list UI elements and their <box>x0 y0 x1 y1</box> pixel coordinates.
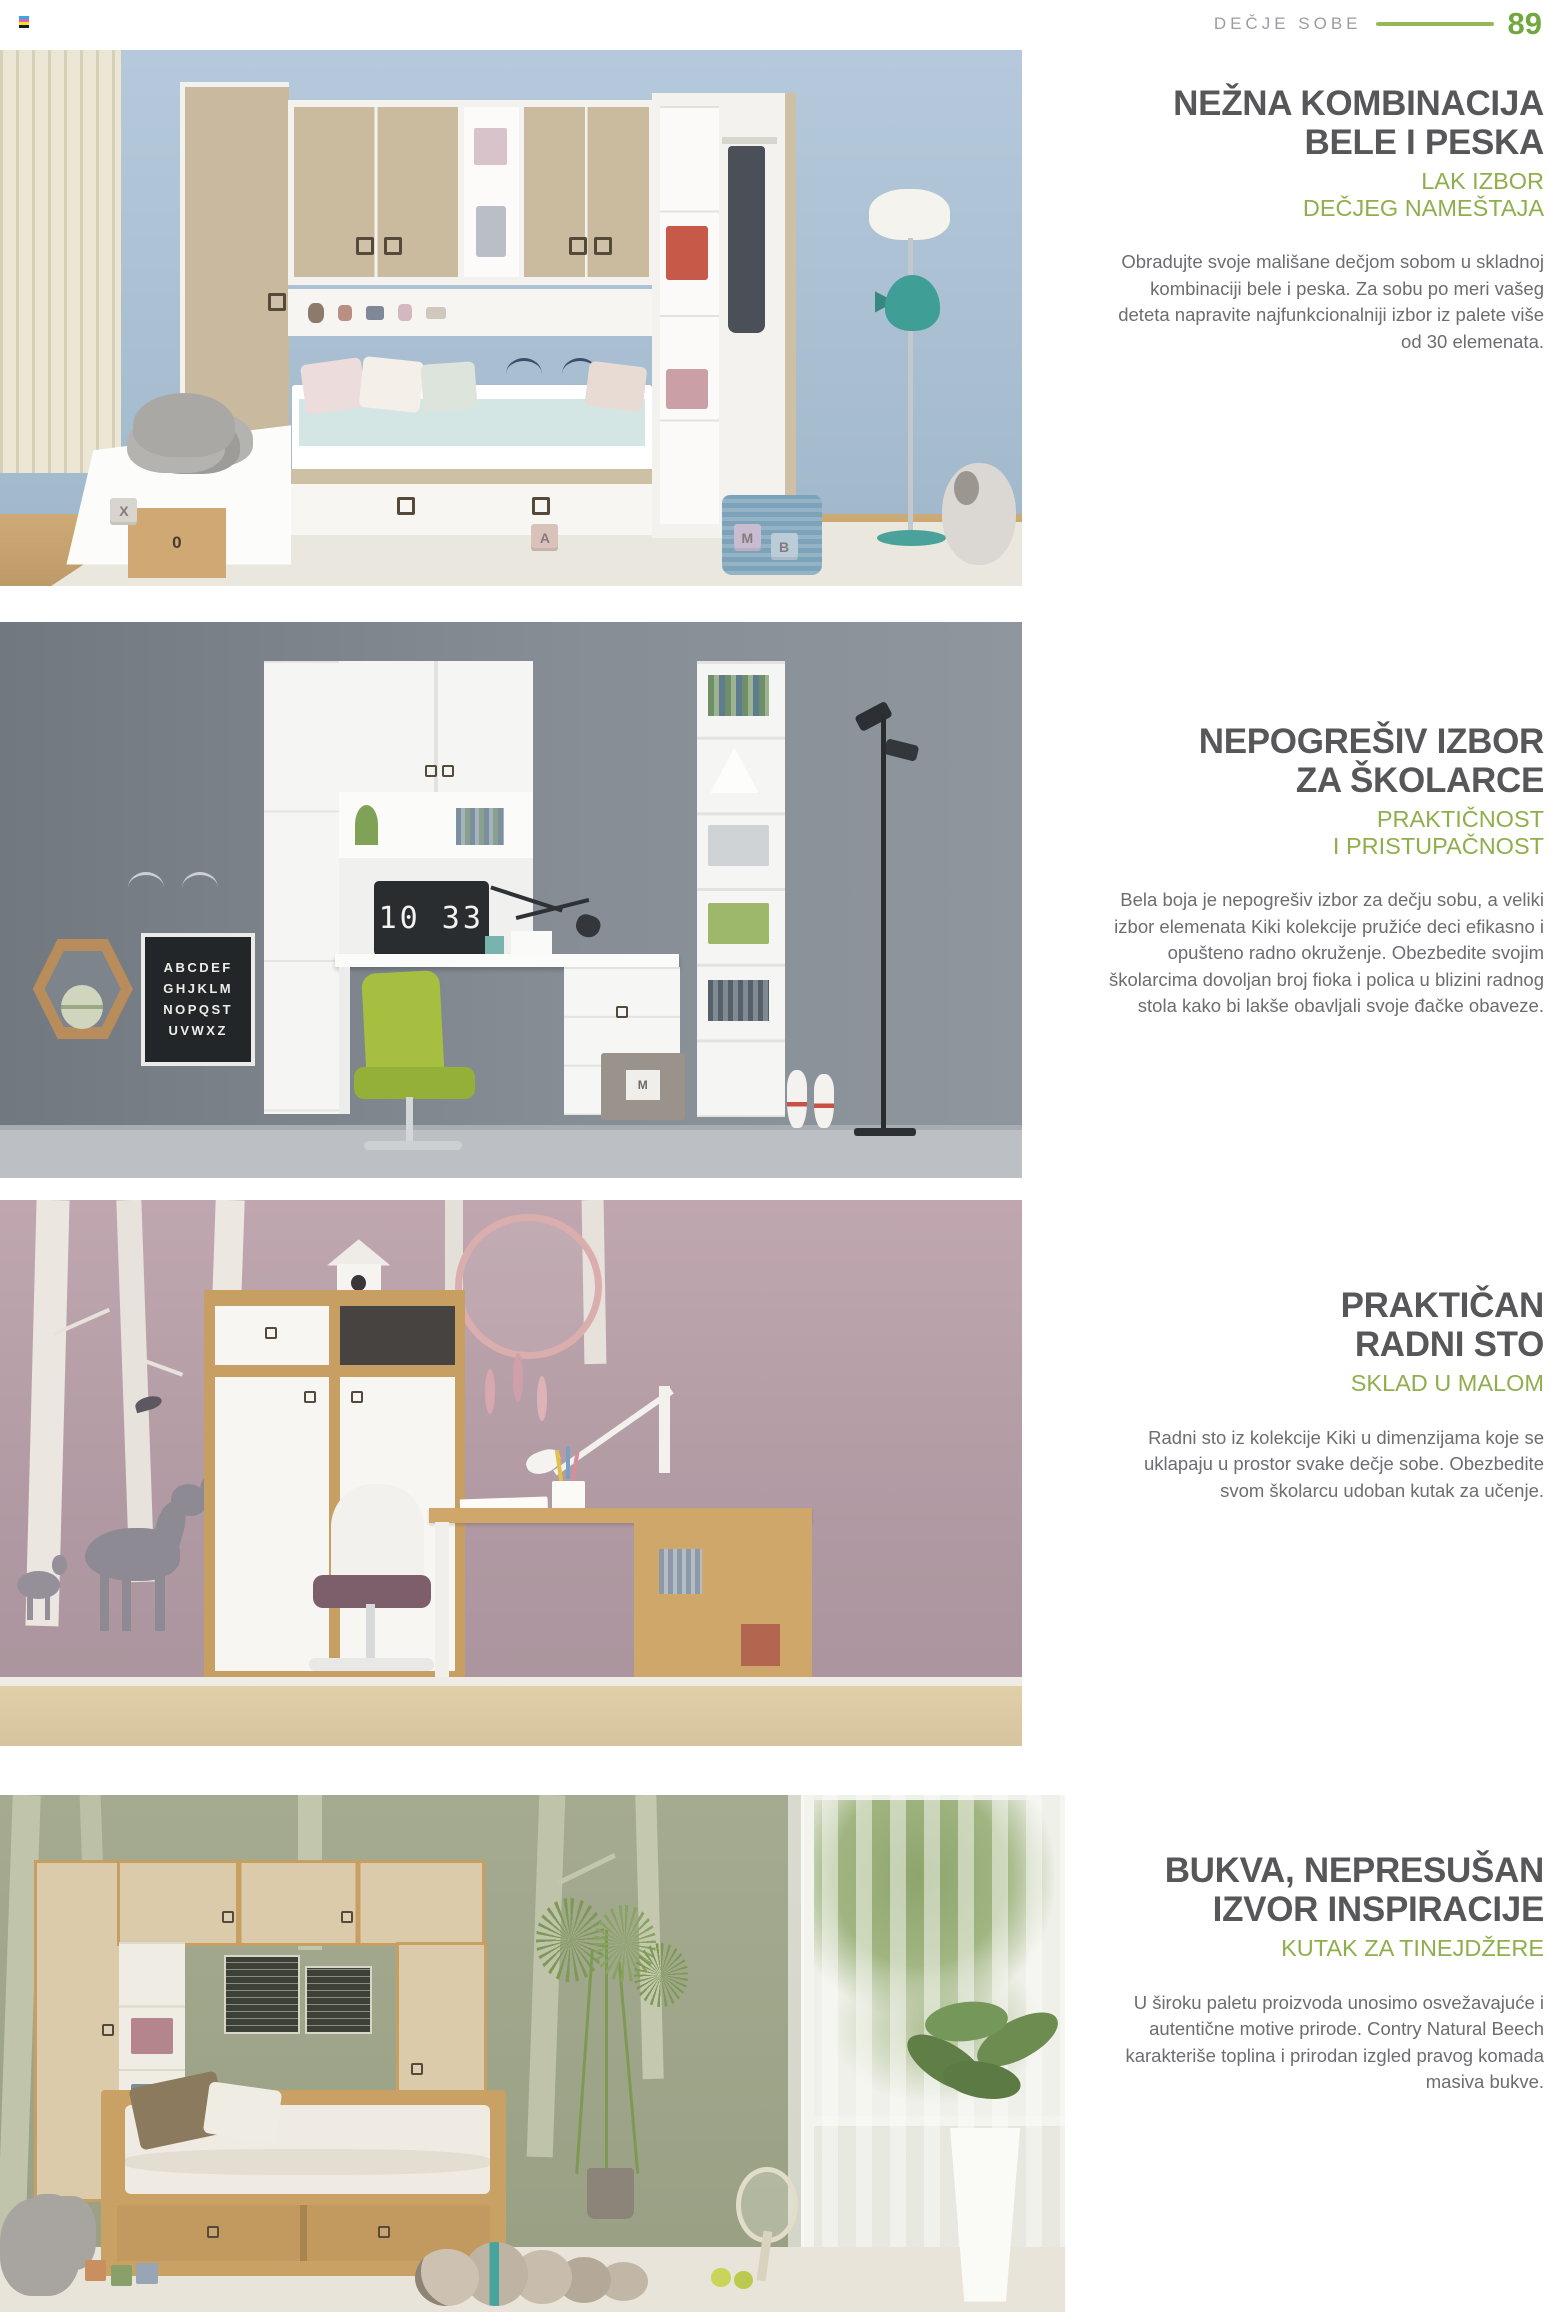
drawer-handle <box>207 2226 219 2238</box>
title-line: RADNI STO <box>1341 1325 1544 1364</box>
desk-shelf-unit <box>634 1523 813 1686</box>
section-title: NEPOGREŠIV IZBOR ZA ŠKOLARCE <box>1199 722 1544 800</box>
title-line: PRAKTIČAN <box>1341 1286 1544 1325</box>
trundle-trim <box>284 469 660 484</box>
open-shelf <box>340 1306 455 1365</box>
fawn-body <box>17 1571 60 1599</box>
lamp-base <box>877 530 946 546</box>
drawer-handle <box>397 497 415 515</box>
cabinet-handle <box>442 765 454 777</box>
header-rule <box>1376 22 1494 26</box>
subtitle-line: DEČJEG NAMEŠTAJA <box>1303 195 1544 222</box>
photo-study-room-white: ABCDEF GHJKLM NOPQST UVWXZ 10 33 <box>0 622 1022 1178</box>
title-line: IZVOR INSPIRACIJE <box>1165 1890 1544 1929</box>
cabinet-handle <box>569 237 587 255</box>
poster-line: NOPQST <box>145 1000 251 1021</box>
papyrus-head <box>634 1943 688 2007</box>
open-cubbies <box>339 792 533 859</box>
feather <box>537 1376 547 1421</box>
chair-base <box>309 1658 434 1670</box>
toy-block: X <box>110 498 137 525</box>
section-title: BUKVA, NEPRESUŠAN IZVOR INSPIRACIJE <box>1165 1851 1544 1929</box>
open-wardrobe <box>652 93 791 538</box>
fabric-storage-box: M <box>601 1053 685 1120</box>
section-subtitle: PRAKTIČNOST I PRISTUPAČNOST <box>1333 806 1544 859</box>
subtitle-line: LAK IZBOR <box>1303 168 1544 195</box>
section-title: NEŽNA KOMBINACIJA BELE I PESKA <box>1173 84 1544 162</box>
section-body: U široku paletu proizvoda unosimo osveža… <box>1108 1990 1544 2096</box>
green-box <box>708 903 770 944</box>
poster-line: UVWXZ <box>145 1021 251 1042</box>
box-letter: M <box>638 1078 648 1092</box>
cabinet-doors <box>294 107 459 277</box>
cup <box>552 1481 585 1512</box>
chair-pole <box>406 1097 414 1142</box>
hanging-decor <box>485 1353 557 1435</box>
toy-shelf <box>288 289 674 336</box>
reg-black-bar <box>19 25 29 28</box>
white-planter <box>943 2128 1026 2302</box>
toy-block: M <box>734 524 761 551</box>
birdhouse-hole <box>351 1275 366 1291</box>
toy-box <box>474 128 507 165</box>
oak-floor <box>0 1686 1022 1746</box>
desk-top <box>335 954 678 967</box>
duvet-fold <box>125 2149 489 2175</box>
box-label: M <box>626 1070 660 1100</box>
plant-pot <box>587 2168 634 2219</box>
section-title: PRAKTIČAN RADNI STO <box>1341 1286 1544 1364</box>
cabinet-handle <box>384 237 402 255</box>
green-chair <box>354 972 523 1161</box>
toy-box <box>476 206 506 257</box>
pillow <box>585 361 648 412</box>
pillow <box>420 361 477 412</box>
wardrobe-handle <box>268 293 286 311</box>
plant <box>355 805 378 845</box>
photo-kids-room-sand: 0 X A M B <box>0 50 1022 586</box>
toy-cube <box>85 2260 106 2281</box>
wooden-crate: 0 <box>128 508 226 578</box>
tall-cabinet <box>264 661 340 1114</box>
deer-leg <box>155 1575 164 1631</box>
poster-line: GHJKLM <box>145 979 251 1000</box>
fawn-leg <box>27 1593 33 1620</box>
toy <box>366 306 384 320</box>
title-line: NEŽNA KOMBINACIJA <box>1173 84 1544 123</box>
plush-sheep <box>942 463 1016 565</box>
desk-leg <box>339 967 349 1114</box>
desk-top <box>429 1508 812 1522</box>
birdhouse-roof <box>327 1239 390 1265</box>
hanging-garment <box>728 146 764 333</box>
books <box>708 675 770 716</box>
pin <box>787 1070 807 1128</box>
wardrobe-handle <box>411 2063 423 2075</box>
toy-cube <box>136 2263 157 2284</box>
tennis-ball <box>711 2268 730 2287</box>
vertical-blinds <box>0 50 121 473</box>
subtitle-line: SKLAD U MALOM <box>1351 1370 1544 1397</box>
section-subtitle: LAK IZBOR DEČJEG NAMEŠTAJA <box>1303 168 1544 221</box>
lamp-base <box>854 1128 915 1136</box>
desk-boxes <box>511 931 552 956</box>
fawn-leg <box>45 1593 51 1620</box>
stem <box>618 1963 639 2174</box>
wardrobe-shelves <box>660 106 718 524</box>
cabinet-handle <box>222 1911 234 1923</box>
upper-cabinets <box>339 661 533 792</box>
crate-digit: 0 <box>172 533 181 553</box>
page-number: 89 <box>1508 8 1542 39</box>
block-letter: X <box>119 503 128 519</box>
block-letter: B <box>779 539 789 555</box>
pillow <box>358 356 424 414</box>
section-praktican-radni-sto: PRAKTIČAN RADNI STO SKLAD U MALOM Radni … <box>1035 1200 1544 1504</box>
fawn-head <box>52 1555 68 1575</box>
alphabet-poster: ABCDEF GHJKLM NOPQST UVWXZ <box>141 933 255 1066</box>
title-line: NEPOGREŠIV IZBOR <box>1199 722 1544 761</box>
palm-plant <box>911 2002 1060 2302</box>
floor-lamp-shade <box>869 189 951 240</box>
subtitle-line: KUTAK ZA TINEJDŽERE <box>1281 1935 1544 1962</box>
bridge-cabinets <box>117 1860 485 1946</box>
overbed-cabinets <box>288 100 654 285</box>
clock-time: 10 33 <box>374 881 488 956</box>
drawer-handle <box>265 1327 277 1339</box>
black-lamp-pole <box>881 714 886 1131</box>
white-office-chair <box>291 1484 470 1691</box>
chalkboard-poster <box>224 1955 300 2034</box>
skirting <box>0 1677 1022 1686</box>
toy <box>426 307 446 319</box>
cabinet-handle <box>356 237 374 255</box>
title-line: BUKVA, NEPRESUŠAN <box>1165 1851 1544 1890</box>
sheep-head <box>954 471 979 506</box>
toy <box>398 304 412 321</box>
feather <box>513 1353 523 1402</box>
door-handle <box>351 1391 363 1403</box>
cabinet-drawer <box>215 1306 330 1365</box>
pencil <box>566 1446 570 1478</box>
books <box>659 1549 702 1595</box>
open-door <box>785 93 796 538</box>
page-header: DEČJE SOBE 89 <box>1214 8 1542 39</box>
shelf-tower <box>697 661 785 1117</box>
pencil-cup <box>552 1473 585 1511</box>
round-mirror <box>455 1214 602 1359</box>
chair-base <box>364 1141 462 1150</box>
pillow <box>300 357 367 415</box>
bed <box>292 385 652 471</box>
tennis-racket <box>730 2167 799 2281</box>
section-body: Bela boja je nepogrešiv izbor za dečju s… <box>1108 887 1544 1020</box>
deer-leg <box>122 1578 131 1631</box>
pink-clothes <box>666 369 708 409</box>
drawer-handle <box>378 2226 390 2238</box>
deer-leg <box>100 1575 109 1631</box>
deer-decal <box>66 1484 219 1631</box>
toy-cube <box>111 2265 132 2286</box>
subtitle-line: I PRISTUPAČNOST <box>1333 833 1544 860</box>
catalog-page: DEČJE SOBE 89 <box>0 0 1550 2312</box>
block-letter: M <box>741 530 753 546</box>
open-shelf-niche <box>464 107 519 277</box>
papyrus-plant <box>522 1898 703 2219</box>
toy <box>338 305 352 321</box>
books <box>708 980 770 1021</box>
cabinet-handle <box>594 237 612 255</box>
wardrobe-handle <box>102 2024 114 2036</box>
photo-teen-room-beech <box>0 1795 1065 2312</box>
block-letter: A <box>540 530 550 546</box>
toy-block: B <box>771 533 798 560</box>
section-nezna-kombinacija: NEŽNA KOMBINACIJA BELE I PESKA LAK IZBOR… <box>1035 50 1544 355</box>
stem <box>576 1950 594 2174</box>
drawer-handle <box>616 1006 628 1018</box>
section-subtitle: SKLAD U MALOM <box>1351 1370 1544 1397</box>
photo-desk-room-mauve <box>0 1200 1022 1746</box>
door-handle <box>304 1391 316 1403</box>
chalkboard-poster <box>305 1966 373 2035</box>
ball <box>61 985 103 1029</box>
digital-clock: 10 33 <box>374 881 488 956</box>
fawn-decal <box>10 1549 82 1620</box>
plush-bear <box>0 2198 80 2296</box>
feather <box>485 1369 495 1414</box>
section-label: DEČJE SOBE <box>1214 14 1362 34</box>
books <box>456 808 505 845</box>
section-subtitle: KUTAK ZA TINEJDŽERE <box>1281 1935 1544 1962</box>
white-pillow <box>203 2081 282 2143</box>
teddy-toy <box>308 303 324 323</box>
title-line: ZA ŠKOLARCE <box>1199 761 1544 800</box>
plush-octopus <box>133 393 235 457</box>
clothes-stack <box>131 2018 173 2053</box>
basket <box>708 825 770 866</box>
section-bukva-inspiracija: BUKVA, NEPRESUŠAN IZVOR INSPIRACIJE KUTA… <box>1080 1795 1544 2096</box>
chair-pole <box>366 1604 375 1658</box>
bowling-pins <box>787 1070 836 1128</box>
red-clothes <box>666 226 708 279</box>
sailboat <box>710 748 758 794</box>
pen-cup <box>485 936 503 955</box>
section-nepogresiv-izbor: NEPOGREŠIV IZBOR ZA ŠKOLARCE PRAKTIČNOST… <box>1035 622 1544 1020</box>
cabinet-handle <box>341 1911 353 1923</box>
hanging-rail <box>722 137 778 144</box>
cabinet-doors <box>524 107 648 277</box>
section-body: Obradujte svoje mališane dečjom sobom u … <box>1108 249 1544 355</box>
tennis-ball <box>734 2271 753 2290</box>
toy-block: A <box>531 524 558 551</box>
print-registration-mark <box>19 16 29 28</box>
pin <box>814 1074 834 1128</box>
drawer-handle <box>532 497 550 515</box>
chair-seat <box>354 1067 475 1099</box>
title-line: BELE I PESKA <box>1173 123 1544 162</box>
desk-lamp-arm <box>659 1386 670 1473</box>
section-body: Radni sto iz kolekcije Kiki u dimenzijam… <box>1108 1425 1544 1505</box>
subtitle-line: PRAKTIČNOST <box>1333 806 1544 833</box>
poster-line: ABCDEF <box>145 958 251 979</box>
cabinet-handle <box>425 765 437 777</box>
caterpillar-head <box>415 2249 479 2306</box>
trundle-drawer <box>284 469 660 535</box>
plush-caterpillar <box>415 2242 660 2309</box>
box <box>741 1624 780 1666</box>
